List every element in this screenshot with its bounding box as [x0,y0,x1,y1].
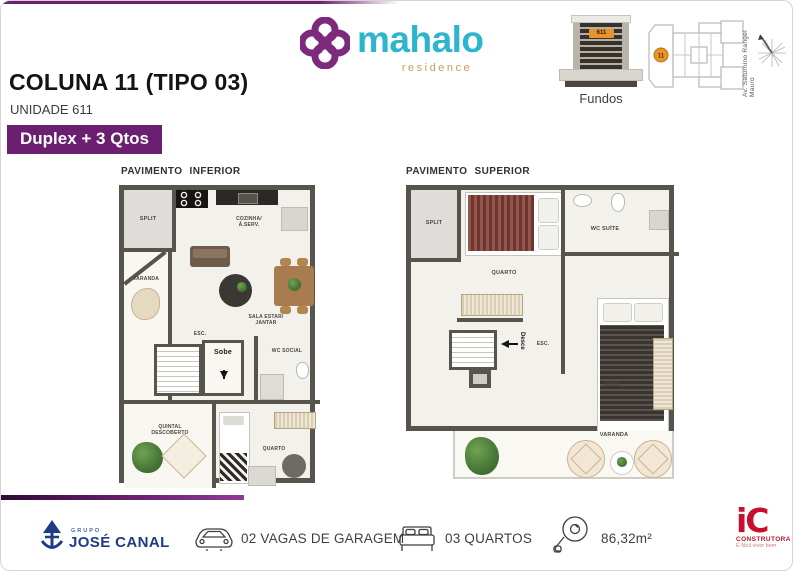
rattan-chair [634,440,672,478]
desce-label: Desce [519,332,525,350]
room-label-split-sup: SPLIT [411,220,457,227]
dining-chair [297,306,308,314]
bed-icon [397,525,437,555]
stairs-inferior [154,344,202,396]
wall-wc-suite-bottom [561,252,679,256]
page-title: COLUNA 11 (TIPO 03) [9,69,248,96]
room-label-split-inf: SPLIT [124,216,172,223]
ic-logo-name: CONSTRUTORA [736,536,792,543]
bed-pillow [538,225,559,250]
rug-plant [237,282,247,292]
room-label-suite: SUÍTE [589,382,635,389]
siteplan-diagram: 11 [647,17,745,95]
ic-logo-mark: iC [736,506,792,536]
varanda-table-plant [617,457,627,467]
ic-logo-tagline: É fácil viver bem. [736,543,792,549]
wall-stairs-top [457,318,523,322]
bed-quarto-sup [465,192,563,256]
brand-subtitle: residence [357,62,517,74]
quintal-plant [132,442,163,473]
building-roof [571,15,631,23]
bed-throw [220,453,247,481]
table-plant [288,278,301,291]
wardrobe-suite [653,338,673,410]
building-column-left [573,23,580,69]
rug-round [219,274,252,307]
sink-wc-suite [573,194,592,207]
bed-pillow [538,198,559,223]
toilet-inf [296,362,309,379]
rattan-chair-weave [570,443,601,474]
brand-clover-icon [300,17,350,69]
toilet-wc-suite [611,193,625,212]
shower-inf [260,374,284,400]
bed-single [219,412,250,484]
building-base [565,81,637,87]
room-label-sala: SALA ESTAR/ JANTAR [242,314,290,327]
fridge [281,207,308,231]
shower-wc-suite [649,210,669,230]
footer-accent-bar [1,495,244,500]
rattan-chair [567,440,605,478]
room-label-wc-suite: WC SUÍTE [579,226,631,233]
stairs-superior [449,330,497,370]
plan-superior: SPLIT QUARTO WC SUÍTE Desce ESC. [406,185,674,431]
rattan-chair-weave [637,443,668,474]
bed-pillow [603,303,632,322]
tape-measure-icon [551,513,591,555]
desk-chair [282,454,306,478]
varanda-table [610,451,634,475]
unit-label: UNIDADE 611 [10,102,93,117]
sobe-label: Sobe [205,349,241,358]
bed-blanket-maroon [468,195,534,251]
wardrobe-quarto-sup [461,294,523,316]
stair-landing-inner [473,374,487,384]
sofa-cushions [193,249,227,258]
dining-chair [297,258,308,266]
plan-superior-title: PAVIMENTO SUPERIOR [406,166,530,177]
wall-wc [254,336,258,402]
siteplan-unit-label: 11 [658,54,665,60]
sofa [190,246,230,267]
kitchen-counter [216,190,278,205]
area-text: 86,32m² [601,531,652,546]
stair-landing-room: Sobe [202,340,244,396]
wall-wc-suite [561,190,565,252]
building-podium [559,69,643,81]
desce-arrow-icon [501,340,509,348]
jose-canal-label: JOSÉ CANAL [69,534,170,551]
room-label-quarto-inf: QUARTO [252,446,296,452]
bedrooms-text: 03 QUARTOS [445,531,532,546]
room-label-esc-inf: ESC. [188,331,212,337]
wall-quintal-quarto [212,404,216,488]
dining-chair [280,258,291,266]
garage-text: 02 VAGAS DE GARAGEM [241,531,404,546]
room-label-varanda-inf: VARANDA [124,276,168,282]
desk [248,466,276,486]
building-column-right [622,23,629,69]
top-accent-line [1,1,399,4]
plan-inferior-title: PAVIMENTO INFERIOR [121,166,241,177]
varanda-plant [465,437,499,475]
bed-pillow [223,416,244,425]
plan-inferior: SPLIT COZINHA/ Á.SERV. VARANDA SALA ESTA… [119,185,315,483]
dining-chair [280,306,291,314]
room-varanda-sup: VARANDA [453,431,674,479]
wall-suite-left [561,256,565,374]
building-unit-badge: 611 [589,29,614,38]
wardrobe-inf [274,412,316,429]
brand-wordmark: mahalo [357,19,484,61]
building-rendering: 611 [567,15,635,87]
room-label-wc-social: WC SOCIAL [262,348,312,354]
kitchen-sink [238,193,258,204]
typology-badge: Duplex + 3 Qtos [7,125,162,154]
compass-icon [753,27,791,73]
stair-landing-sup [469,370,491,388]
hammock-chair [131,288,160,320]
stove [176,190,208,208]
building-caption: Fundos [561,91,641,106]
bed-pillow [634,303,663,322]
room-label-quarto-sup: QUARTO [481,270,527,277]
ic-construtora-logo: iC CONSTRUTORA É fácil viver bem. [736,506,792,549]
room-label-quintal: QUINTAL DESCOBERTO [138,424,202,437]
room-label-varanda-sup: VARANDA [583,432,645,439]
room-label-cozinha: COZINHA/ Á.SERV. [220,216,278,229]
car-icon [194,525,234,553]
sobe-arrow-icon [220,371,228,379]
flyer-page: COLUNA 11 (TIPO 03) UNIDADE 611 Duplex +… [0,0,793,571]
jose-canal-anchor-icon [39,519,65,555]
room-label-esc-sup: ESC. [529,341,557,347]
